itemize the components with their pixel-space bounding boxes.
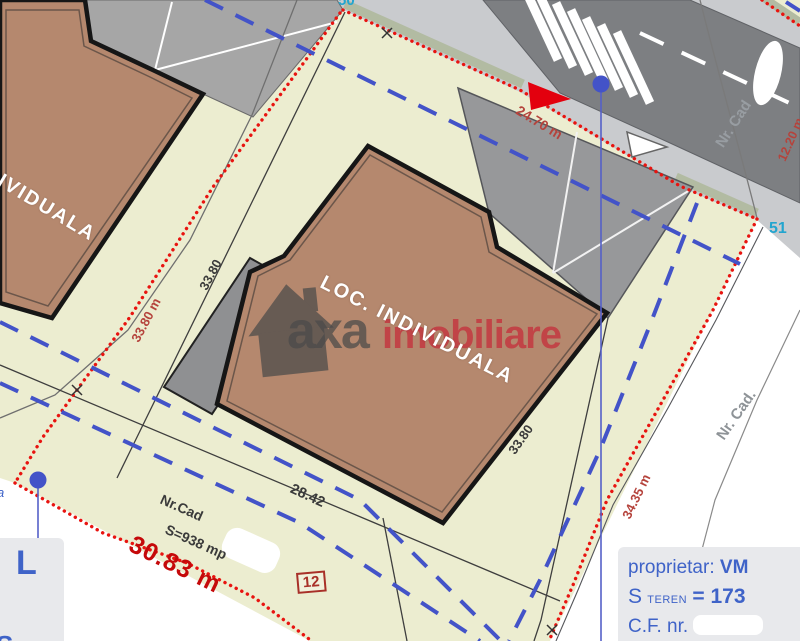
area-line: S TEREN = 173 [628, 582, 800, 612]
owner-info-box: proprietar: VM S TEREN = 173 C.F. nr. [618, 547, 800, 641]
corner-info-box: L S [0, 538, 64, 641]
area-sub: TEREN [647, 594, 687, 606]
cf-line: C.F. nr. [628, 612, 800, 641]
lot-number-badge: 12 [296, 570, 326, 593]
cadastral-plan: axa imobiliare LOC. INDIVIDUALA INDIVIDU… [0, 0, 800, 641]
point-label-51: 51 [769, 221, 787, 237]
erased-cf-number [693, 615, 763, 635]
area-s: S [628, 585, 642, 608]
corner-partial-letter: S [0, 630, 13, 641]
point-label-50: 50 [338, 0, 355, 8]
street-name-fragment: a [0, 486, 4, 499]
owner-label: proprietar: [628, 557, 715, 578]
owner-line: proprietar: VM [628, 554, 800, 582]
corner-letter: L [16, 544, 37, 583]
owner-value: VM [720, 557, 749, 578]
area-value: = 173 [692, 585, 745, 608]
cf-label: C.F. nr. [628, 616, 688, 637]
